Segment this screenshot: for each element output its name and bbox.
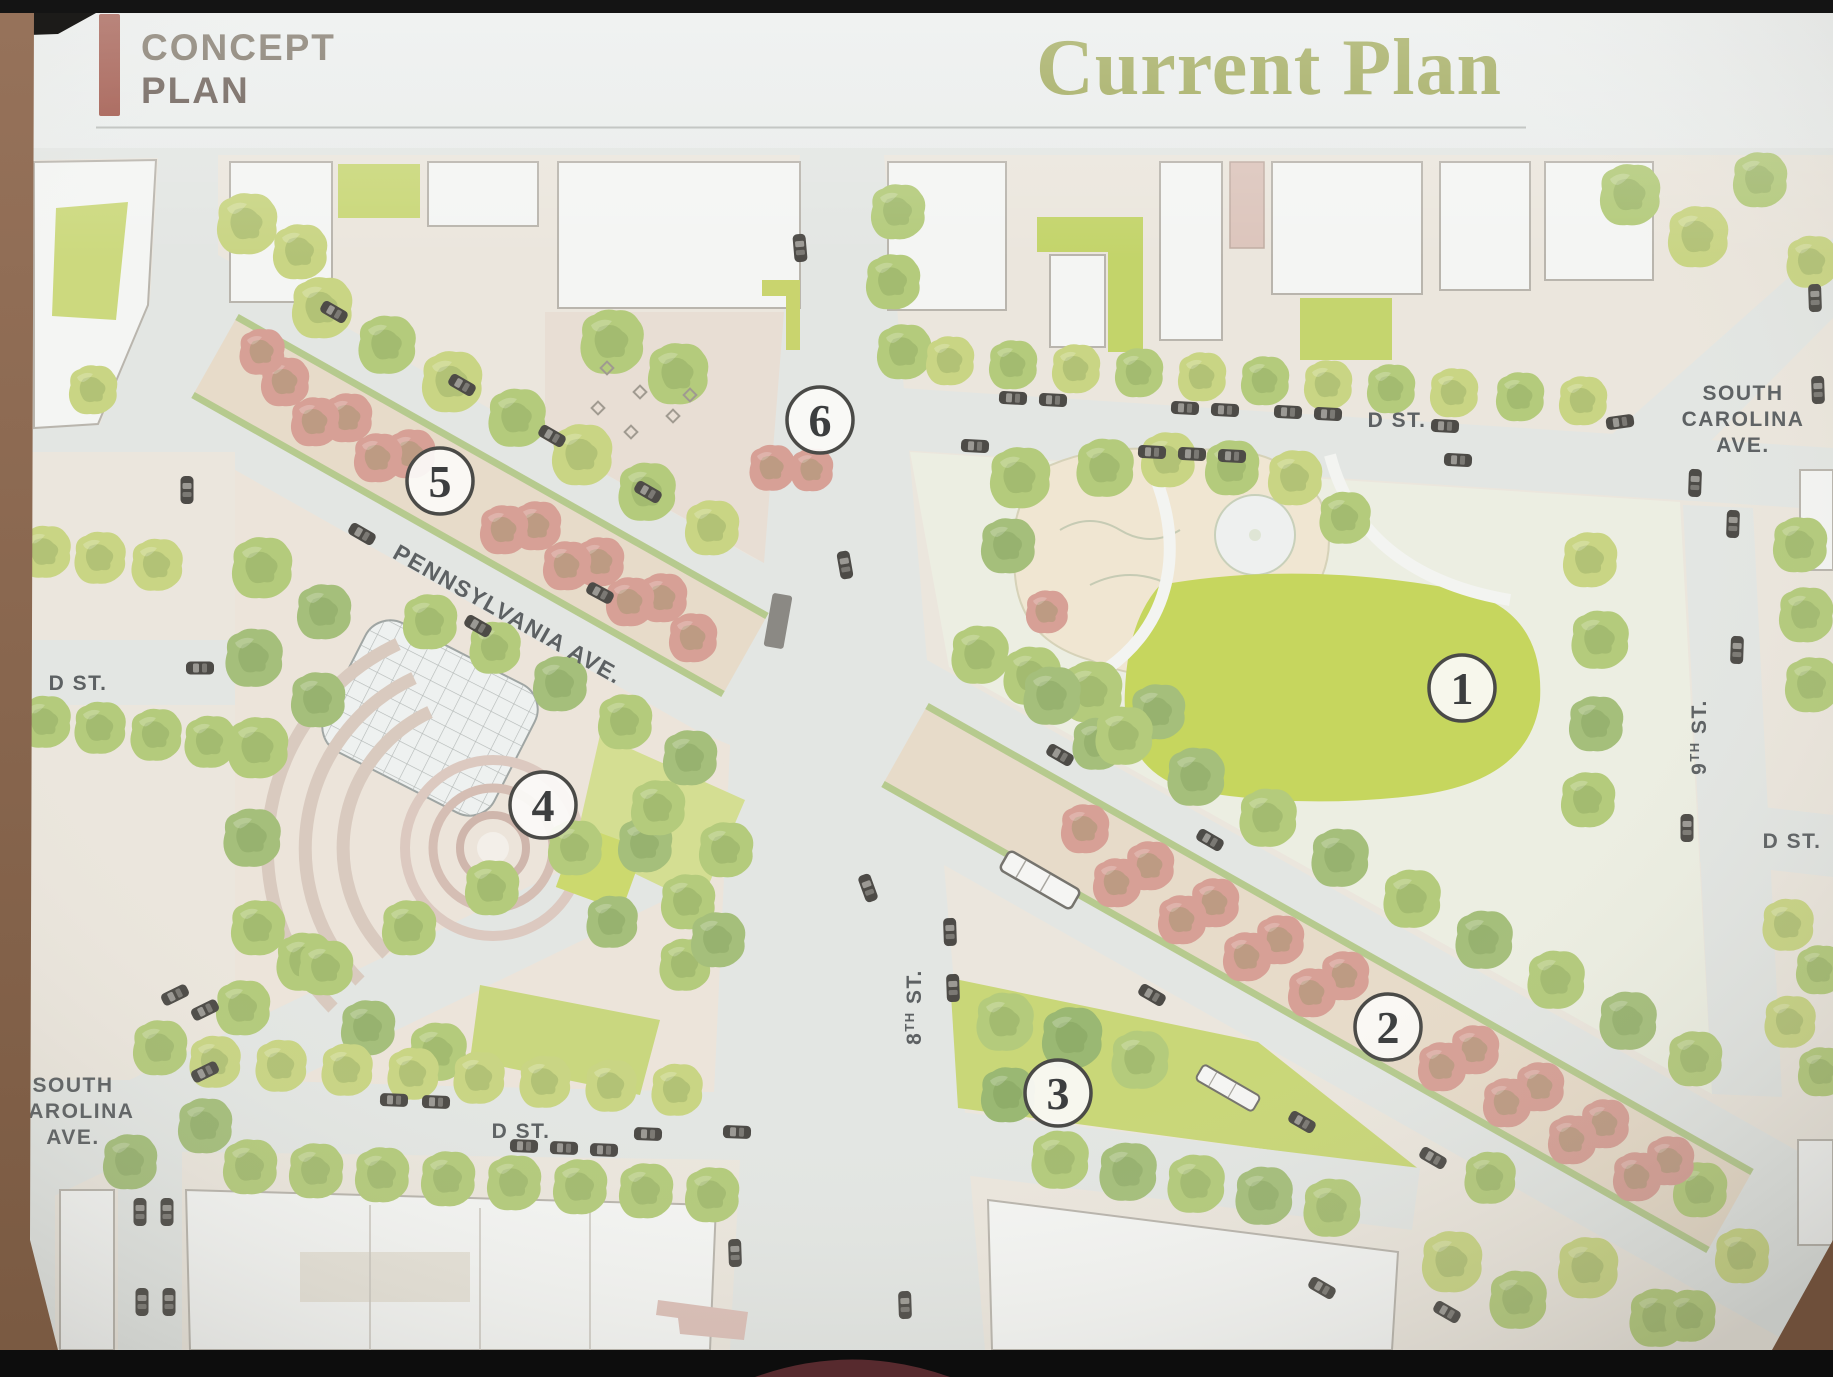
concept-plan-map: D ST. PENNSYLVANIA AVE. D ST. SOUTH CARO…: [0, 0, 1833, 1377]
photo-lighting: [0, 0, 1833, 1377]
photo-border-top: [0, 0, 1833, 13]
vignette: [0, 0, 1833, 1377]
photographed-slide: D ST. PENNSYLVANIA AVE. D ST. SOUTH CARO…: [0, 0, 1833, 1377]
